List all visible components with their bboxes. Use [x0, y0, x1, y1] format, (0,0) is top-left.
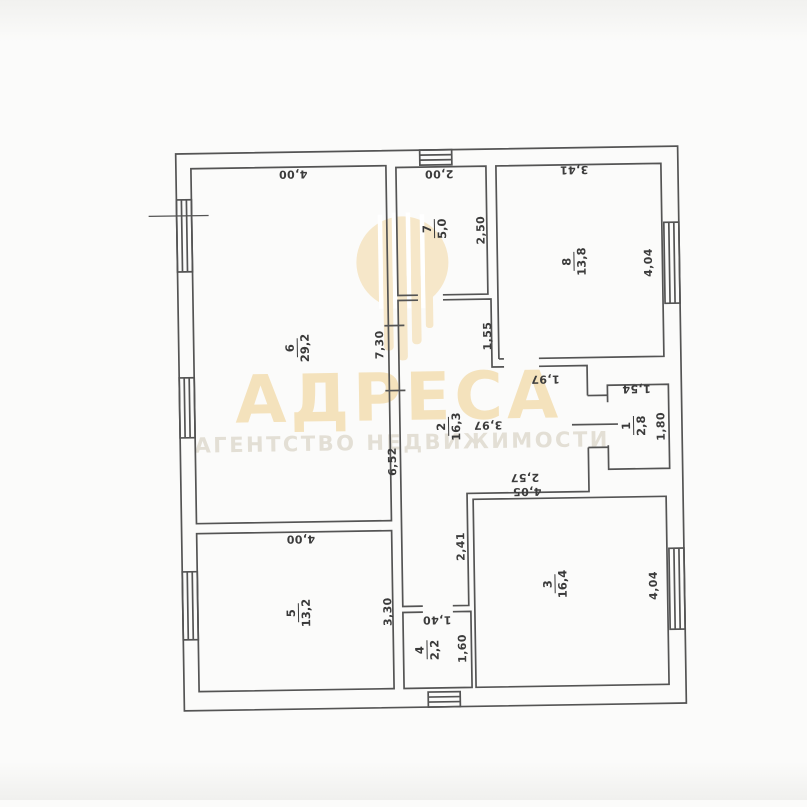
dimension-label: 1,80	[654, 412, 667, 441]
room-number: 8	[560, 258, 573, 266]
room-number: 1	[620, 422, 633, 430]
floor-plan-drawing	[0, 0, 807, 807]
room-number: 5	[285, 609, 298, 617]
dimension-label: 1,97	[531, 372, 560, 385]
dimension-label: 2,00	[425, 167, 454, 180]
dimension-label: 1,54	[622, 382, 651, 395]
room-label-3: 3 16,4	[541, 570, 569, 599]
dimension-label: 2,50	[474, 216, 487, 245]
dimension-label: 2,41	[454, 532, 467, 561]
room-area: 16,3	[450, 412, 463, 441]
wall-tick-marks	[384, 325, 405, 390]
room-number: 4	[414, 646, 427, 654]
room-number: 2	[435, 423, 448, 431]
window-right-1	[664, 222, 680, 303]
window-left-1	[176, 200, 192, 272]
dimension-label: 7,30	[373, 330, 386, 359]
dimension-label: 1,55	[481, 322, 494, 351]
room-label-7: 7 5,0	[421, 219, 449, 240]
window-right-2	[669, 548, 685, 629]
dimension-label: 3,41	[559, 163, 588, 176]
window-top	[420, 150, 452, 166]
dimension-label: 4,00	[286, 532, 315, 545]
room-label-2: 2 16,3	[435, 412, 463, 441]
dimension-label: 2,57	[510, 471, 539, 484]
dimension-label: 6,52	[386, 447, 399, 476]
window-left-3	[182, 572, 198, 640]
dimension-label: 4,04	[647, 571, 660, 600]
room-area: 16,4	[557, 570, 570, 599]
room-area: 29,2	[299, 334, 312, 363]
room-3-outline	[473, 496, 669, 687]
floor-plan-sheet: АДРЕСА АГЕНТСТВО НЕДВИЖИМОСТИ	[0, 0, 807, 807]
axis-mark	[149, 215, 209, 216]
dimension-label: 3,30	[381, 597, 394, 626]
door-bottom	[428, 692, 460, 708]
dimension-label: 4,00	[279, 167, 308, 180]
dimension-label: 3,97	[473, 418, 502, 431]
dimension-label: 1,60	[456, 634, 469, 663]
dimension-label: 4,05	[513, 485, 542, 498]
room-label-1: 1 2,8	[620, 415, 648, 436]
room-area: 13,8	[576, 247, 589, 276]
room-area: 5,0	[436, 219, 449, 240]
dimension-label: 1,40	[423, 613, 452, 626]
room-label-8: 8 13,8	[560, 247, 588, 276]
dimension-line	[572, 424, 618, 425]
room-label-5: 5 13,2	[285, 599, 313, 628]
dimension-label: 4,04	[642, 248, 655, 277]
room-label-6: 6 29,2	[284, 334, 312, 363]
hall-to-room1-passage	[588, 395, 609, 447]
window-left-2	[179, 378, 195, 438]
room-area: 2,2	[429, 640, 442, 661]
room-area: 2,8	[635, 415, 648, 436]
room-number: 7	[421, 225, 434, 233]
room-area: 13,2	[300, 599, 313, 628]
room-label-4: 4 2,2	[413, 640, 441, 661]
room-number: 3	[541, 580, 554, 588]
room-number: 6	[284, 344, 297, 352]
hall-outline	[384, 297, 621, 607]
